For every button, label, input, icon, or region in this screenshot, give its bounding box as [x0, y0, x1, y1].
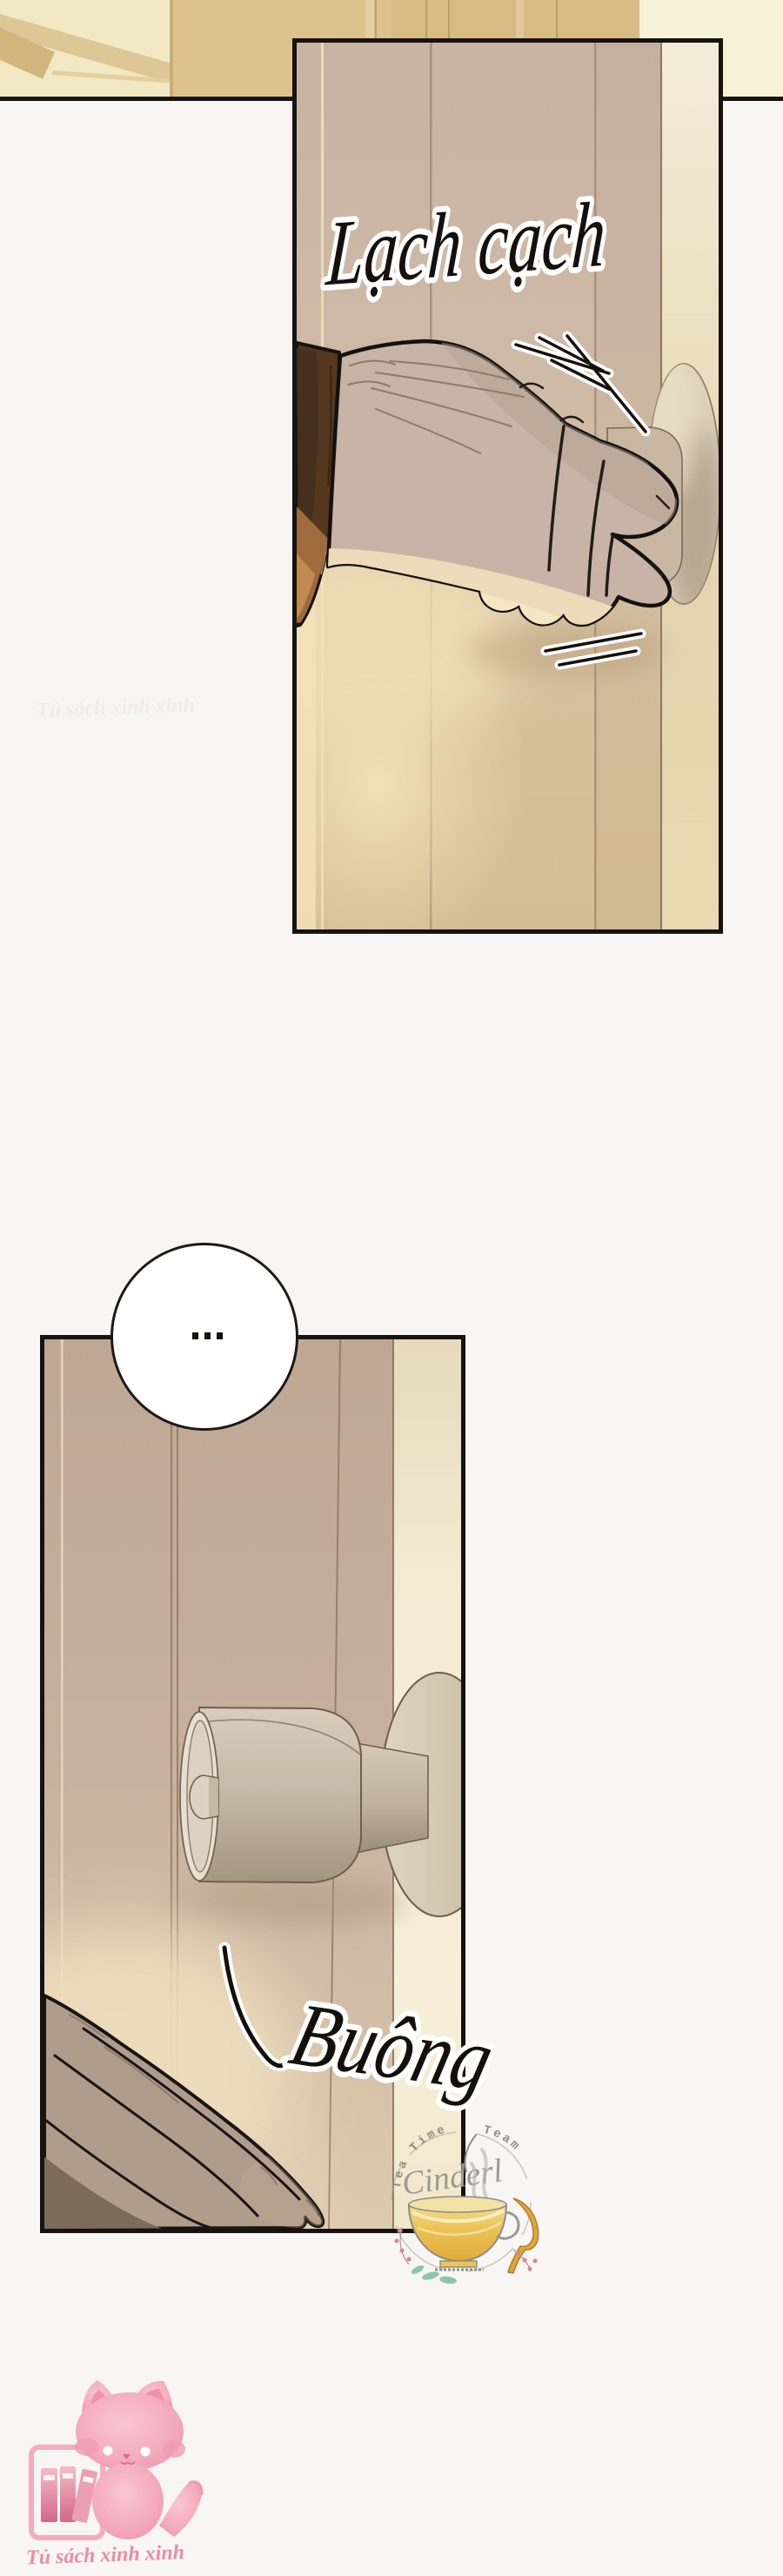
svg-text:Team: Team	[482, 2123, 524, 2155]
svg-text:Buông: Buông	[281, 1984, 503, 2110]
svg-text:Cinderl: Cinderl	[399, 2152, 505, 2203]
svg-text:Lạch cạch: Lạch cạch	[323, 183, 609, 306]
